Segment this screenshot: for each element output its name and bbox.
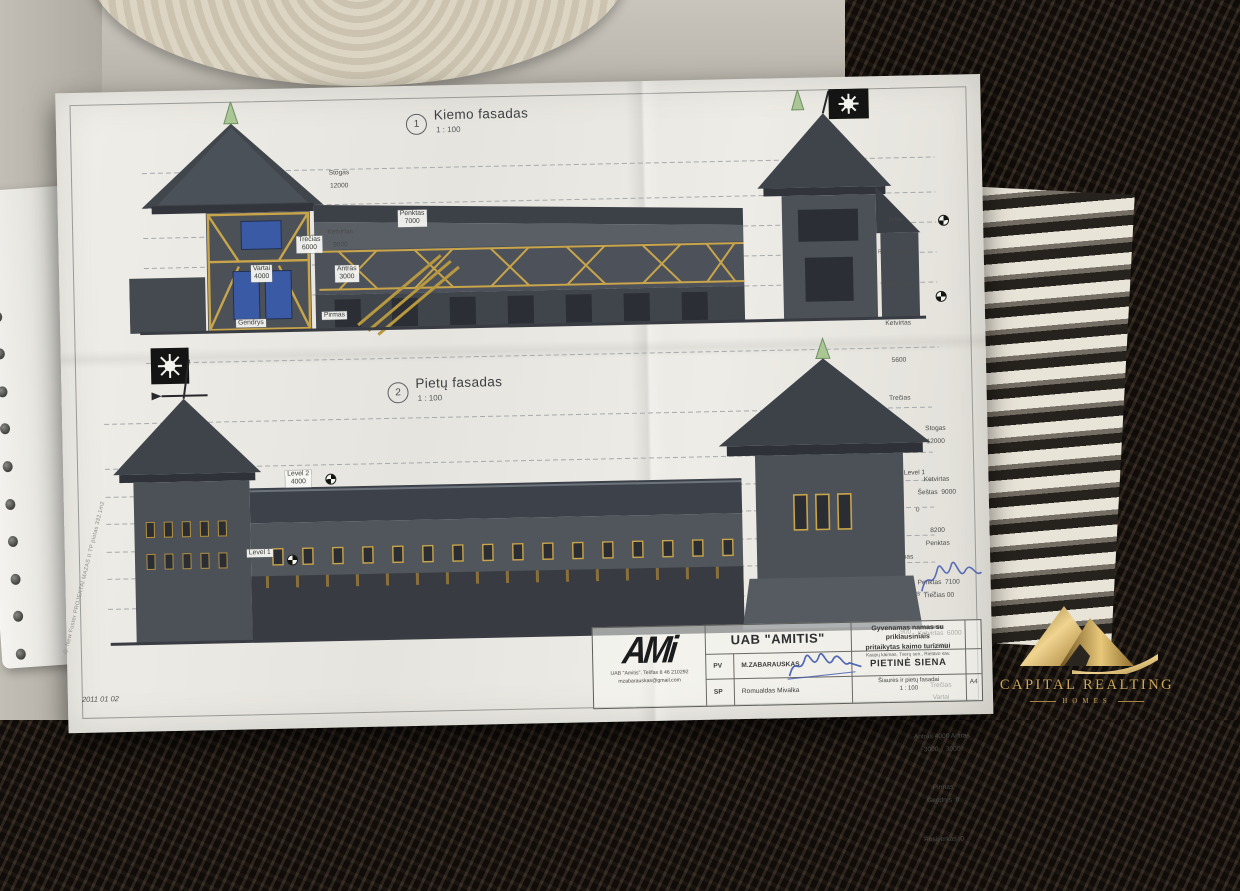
row1-role: PV: [713, 663, 722, 670]
row2-name: Romualdas Mivalka: [742, 687, 800, 695]
capital-realting-watermark: CAPITAL REALTING HOMES: [992, 596, 1182, 718]
weathervane: [162, 395, 208, 396]
photo-scene: 1 Kiemo fasadas 1 : 100: [0, 0, 1240, 720]
watermark-subtitle: HOMES: [992, 697, 1182, 705]
ami-logo: AMi: [591, 629, 708, 669]
row2-role: SP: [714, 689, 723, 696]
d1-vartai-tag: Vartai4000: [251, 265, 273, 282]
black-flag: [828, 88, 869, 119]
approval-signature: [915, 552, 986, 601]
gold-windows: [794, 494, 852, 530]
d1-trecias-tag: Trečias6000: [296, 236, 322, 254]
black-flag: [151, 348, 190, 385]
mountain-logo-icon: [1002, 596, 1172, 674]
view-name-cell: Šiaurės ir pietų fasadai 1 : 100: [852, 675, 966, 694]
left-tower: [111, 346, 265, 644]
tree-finial: [791, 90, 803, 110]
d1-penktas-tag: Penktas7000: [398, 210, 427, 228]
d2-level2-tag: Level 24000: [285, 470, 311, 488]
d1-pirmas-tag: Pirmas: [322, 311, 347, 320]
flag-pole: [822, 91, 828, 113]
d1-left-levels: Stogas12000 Ketvirtas9000: [306, 142, 373, 277]
tree-finial: [223, 102, 237, 124]
courtyard-wall: [314, 196, 746, 336]
watermark-title: CAPITAL REALTING: [992, 677, 1182, 694]
project-title: Gyvenamas namas su priklausiniais pritai…: [851, 622, 966, 652]
d1-gendrys-tag: Gendrys: [236, 319, 266, 328]
sheet-title: PIETINĖ SIENA: [851, 650, 965, 674]
left-tower: [125, 100, 326, 334]
south-wall: [250, 478, 745, 641]
d1-antras-tag: Antras3000: [335, 265, 359, 282]
blueprint-sheet: 1 Kiemo fasadas 1 : 100: [55, 74, 993, 733]
spiral-binding: [0, 198, 26, 660]
tree-finial: [816, 338, 830, 358]
ami-logo-cell: AMi UAB "Amitis". Tel/fax 8 46 210292 mz…: [593, 626, 707, 708]
title-block: AMi UAB "Amitis". Tel/fax 8 46 210292 mz…: [592, 619, 984, 709]
blue-window: [241, 221, 282, 250]
d2-level1-tag: Level 1: [247, 549, 273, 558]
date-note: 2011 01 02: [82, 694, 119, 704]
pietu-fasadas-drawing: [91, 329, 968, 667]
sheet-format: A4: [966, 678, 982, 685]
